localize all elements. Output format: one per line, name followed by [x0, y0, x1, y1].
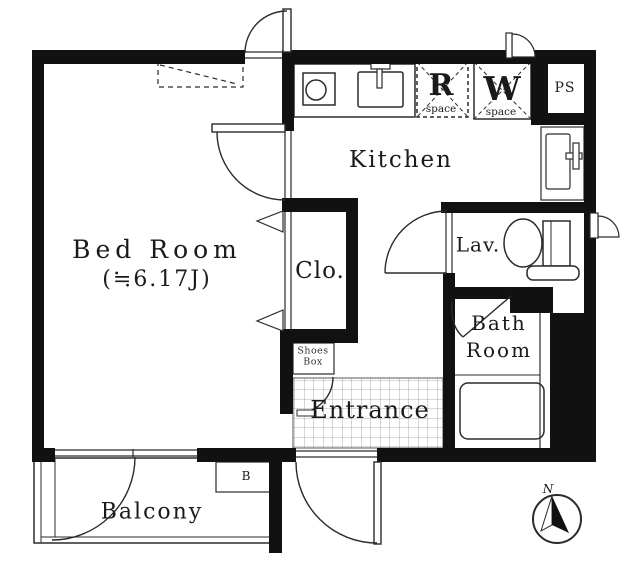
- bedroom-label: Bed Room (≒6.17J): [72, 236, 242, 292]
- closet-label: Clo.: [295, 258, 345, 284]
- water-heater-icon: [541, 127, 584, 200]
- closet-folding-door: [257, 211, 283, 331]
- refrigerator-space-caption: space: [426, 103, 456, 115]
- pipe-space-label: PS: [554, 80, 575, 96]
- bedroom-door: [212, 124, 285, 200]
- north-compass-icon: [533, 495, 581, 543]
- vent-flap-right-icon: [590, 213, 619, 238]
- washer-space-caption: space: [486, 106, 516, 118]
- refrigerator-space-letter: R: [429, 69, 454, 104]
- vent-flap-top-icon: [506, 33, 535, 58]
- compass-north-label: N: [543, 483, 554, 497]
- bedroom-name: Bed Room: [72, 235, 242, 264]
- north-door: [245, 9, 291, 53]
- front-door: [296, 462, 381, 544]
- shoes-box-label: Shoes Box: [297, 346, 328, 369]
- faucet-stem-icon: [377, 69, 382, 88]
- bathroom-label-line1: Bath: [466, 310, 532, 337]
- bathroom-label-line2: Room: [466, 337, 532, 364]
- bathroom-label: Bath Room: [466, 310, 532, 364]
- lavatory-label: Lav.: [456, 234, 501, 257]
- hanging-cupboard-dashed-box: [158, 62, 243, 87]
- fixtures: [34, 61, 584, 543]
- stove-burner-icon: [306, 80, 326, 100]
- balcony-label: Balcony: [101, 499, 203, 524]
- kitchen-label: Kitchen: [349, 147, 453, 173]
- walls: [32, 50, 596, 553]
- shoes-box-label-line1: Shoes: [297, 346, 328, 357]
- toilet-icon: [504, 219, 579, 280]
- boiler-label: B: [242, 470, 251, 484]
- washer-space-letter: W: [483, 70, 520, 108]
- lavatory-door: [385, 211, 447, 273]
- floor-plan: Bed Room (≒6.17J) Kitchen Clo. Lav. Bath…: [0, 0, 640, 569]
- bedroom-size: (≒6.17J): [72, 267, 242, 292]
- bathtub-icon: [460, 383, 544, 439]
- entrance-label: Entrance: [310, 397, 430, 425]
- shoes-box-label-line2: Box: [297, 357, 328, 368]
